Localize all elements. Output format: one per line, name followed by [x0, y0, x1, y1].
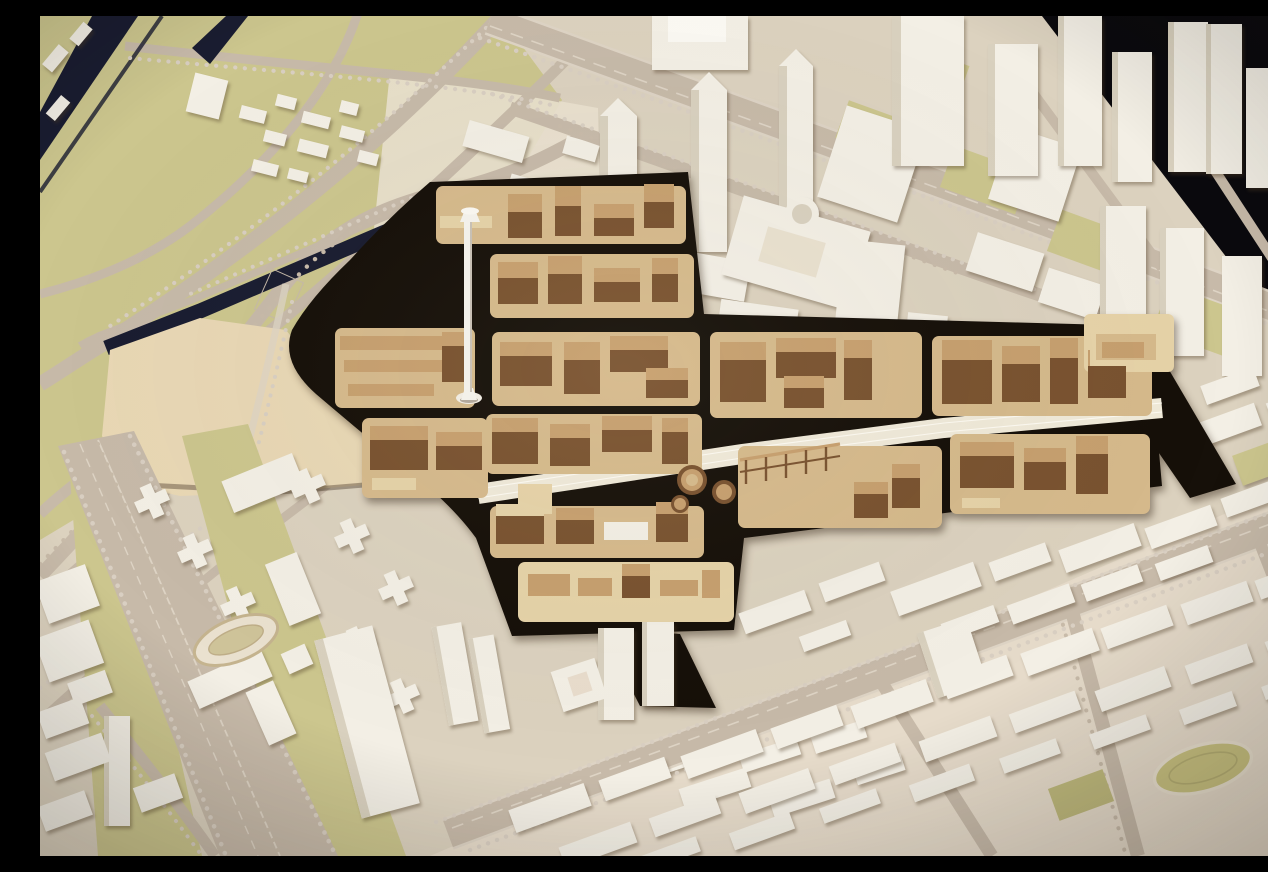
architectural-model-photo	[40, 16, 1268, 856]
vignette-overlay	[40, 16, 1268, 856]
model-photo-canvas	[40, 16, 1268, 856]
